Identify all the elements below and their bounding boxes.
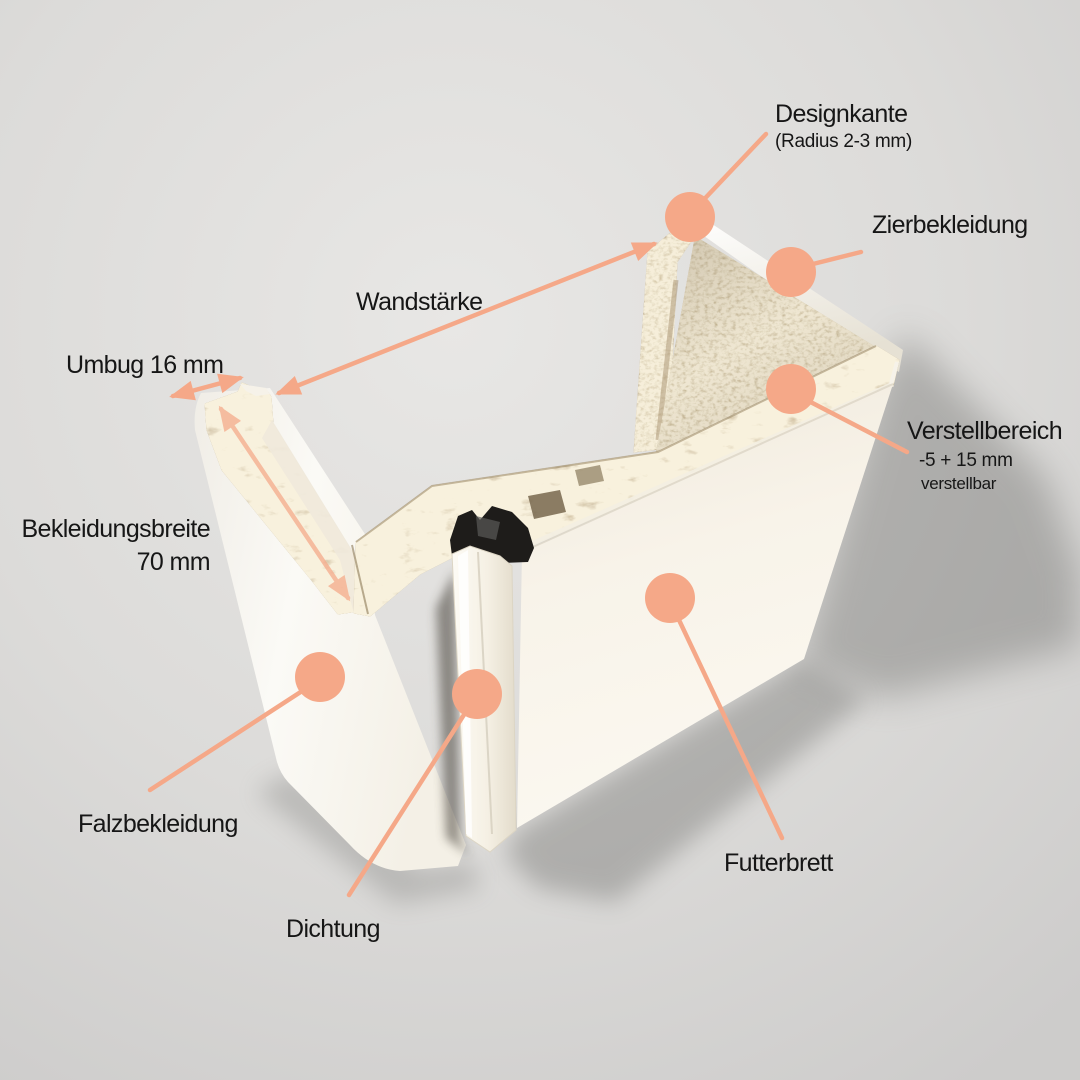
bekleidungsbreite-label-line2: 70 mm — [137, 548, 210, 576]
designkante-label: Designkante — [775, 100, 907, 128]
futterbrett-label: Futterbrett — [724, 849, 833, 877]
door-frame-cross-section-diagram: Designkante (Radius 2-3 mm) Zierbekleidu… — [0, 0, 1080, 1080]
bekleidungsbreite-label-line1: Bekleidungsbreite — [21, 515, 210, 543]
wandstaerke-label: Wandstärke — [356, 288, 482, 316]
zierbekleidung-dot — [766, 247, 816, 297]
verstellbereich-line2: -5 + 15 mm — [919, 450, 1013, 471]
designkante-dot — [665, 192, 715, 242]
dichtung-dot — [452, 669, 502, 719]
futterbrett-dot — [645, 573, 695, 623]
zierbekleidung-label: Zierbekleidung — [872, 211, 1028, 239]
dichtung-label: Dichtung — [286, 915, 380, 943]
verstellbereich-dot — [766, 364, 816, 414]
falzbekleidung-dot — [295, 652, 345, 702]
designkante-sublabel: (Radius 2-3 mm) — [775, 131, 912, 152]
falzbekleidung-label: Falzbekleidung — [78, 810, 238, 838]
verstellbereich-label: Verstellbereich — [907, 417, 1062, 445]
umbug-label: Umbug 16 mm — [66, 351, 223, 379]
verstellbereich-line3: verstellbar — [921, 474, 997, 493]
diagram-canvas: Designkante (Radius 2-3 mm) Zierbekleidu… — [0, 0, 1080, 1080]
